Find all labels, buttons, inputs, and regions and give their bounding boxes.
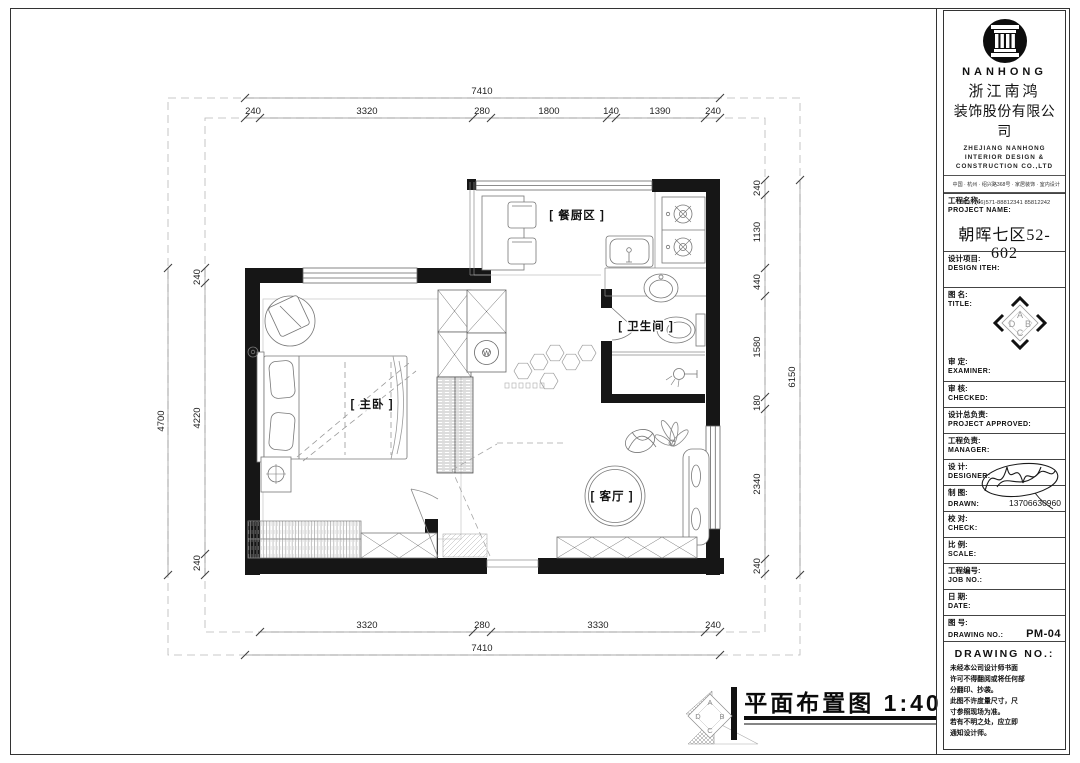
- design-item-section: 设计项目: DESIGN ITEH:: [944, 251, 1065, 287]
- notes-header: DRAWING NO.:: [950, 648, 1059, 660]
- note-line: 分翻印、抄袭。: [950, 686, 1059, 697]
- shower-glass: [612, 352, 705, 355]
- abcd-diamond-logo: A B C D: [993, 296, 1047, 350]
- kitchen-furniture: [482, 196, 705, 270]
- kitchen-sink: [606, 236, 653, 267]
- dim: 240: [705, 620, 721, 631]
- company-name-zh-1: 浙江南鸿: [948, 80, 1061, 101]
- row-drawing-no: 图 号: DRAWING NO.:PM-04: [944, 615, 1065, 641]
- row-designer: 设 计: DESIGNER:: [944, 459, 1065, 485]
- bedroom-window: [303, 268, 417, 283]
- dim: 280: [474, 106, 490, 117]
- label-master-bedroom: [ 主卧 ]: [350, 397, 393, 411]
- dim: 3330: [587, 620, 608, 631]
- row-en: DRAWING NO.:: [948, 631, 1003, 641]
- dim-right-overall: 6150: [787, 366, 798, 387]
- signoff-rows: 审 定: EXAMINER: 审 核: CHECKED: 设计总负责: PROJ…: [944, 355, 1065, 641]
- title-underline-thick: [744, 716, 936, 720]
- dim: 1800: [538, 106, 559, 117]
- dim: 140: [603, 106, 619, 117]
- entry-cabinets: [361, 533, 487, 558]
- dim: 440: [752, 274, 763, 290]
- entry-threshold: [487, 560, 538, 567]
- dim: 1580: [752, 336, 763, 357]
- dim-top-overall: 7410: [471, 86, 492, 97]
- title-block: NANHONG 浙江南鸿 装饰股份有限公司 ZHEJIANG NANHONG I…: [936, 8, 1068, 754]
- row-en: CHECKED:: [948, 394, 988, 404]
- wash-basin: [644, 274, 678, 302]
- figure-title-bar: A B C D 平面布置图 1:40: [686, 687, 940, 744]
- project-name-section: 工程名称: PROJECT NAME: 朝晖七区52-602: [944, 193, 1065, 251]
- row-date: 日 期: DATE:: [944, 589, 1065, 615]
- company-address: 中国 · 杭州 · 绍兴路368号 · 家居装饰 · 室内设计: [953, 181, 1057, 188]
- note-line: 未经本公司设计师书面: [950, 664, 1059, 675]
- row-en: EXAMINER:: [948, 367, 991, 377]
- drawn-phone-value: 13706630960: [1009, 498, 1061, 508]
- note-line: 寸参照现场为准。: [950, 708, 1059, 719]
- dim: 3320: [356, 106, 377, 117]
- row-checked: 审 核: CHECKED:: [944, 381, 1065, 407]
- row-zh: 图 号:: [948, 618, 1061, 628]
- company-name-en-1: ZHEJIANG NANHONG: [948, 144, 1061, 153]
- diamond-letter-b: B: [1025, 319, 1031, 329]
- gas-stove: [662, 197, 705, 263]
- diamond-letter-d: D: [1009, 319, 1016, 329]
- label-bathroom: [ 卫生间 ]: [618, 319, 674, 333]
- pillow: [268, 360, 295, 399]
- living-furniture: [557, 419, 709, 558]
- dim-bottom-overall: 7410: [471, 643, 492, 654]
- entry-mat: [443, 534, 487, 557]
- storage-column: W: [437, 290, 506, 473]
- dim: 240: [192, 555, 203, 571]
- washing-machine: W: [467, 333, 506, 372]
- row-project-approved: 设计总负责: PROJECT APPROVED:: [944, 407, 1065, 433]
- row-zh: 制 图:: [948, 488, 1061, 498]
- figure-title: 平面布置图 1:40: [744, 690, 940, 716]
- label-kitchen-dining: [ 餐厨区 ]: [549, 208, 605, 222]
- row-scale: 比 例: SCALE:: [944, 537, 1065, 563]
- row-en: DRAWN:: [948, 500, 979, 510]
- floor-plan-drawing: 7410 240 3320 280 1800 140 1390 240 3320…: [0, 0, 940, 763]
- low-cabinet-hatched: [248, 521, 361, 558]
- dim: 3320: [356, 620, 377, 631]
- bedroom-furniture: [248, 295, 407, 558]
- plant: [654, 419, 691, 448]
- dim-left-overall: 4700: [156, 410, 167, 431]
- dim: 240: [192, 269, 203, 285]
- kitchen-window: [476, 181, 652, 190]
- design-item-en: DESIGN ITEH:: [948, 264, 1061, 274]
- note-line: 若有不明之处，应立即: [950, 718, 1059, 729]
- project-label-zh: 工程名称:: [948, 196, 1061, 206]
- row-examiner: 审 定: EXAMINER:: [944, 355, 1065, 381]
- row-zh: 审 定:: [948, 357, 1061, 367]
- dim: 240: [752, 180, 763, 196]
- row-job-no: 工程编号: JOB NO.:: [944, 563, 1065, 589]
- company-name-en-3: CONSTRUCTION CO.,LTD: [948, 162, 1061, 171]
- dim: 2340: [752, 473, 763, 494]
- row-zh: 校 对:: [948, 514, 1061, 524]
- drawing-sheet: 7410 240 3320 280 1800 140 1390 240 3320…: [0, 0, 1080, 763]
- row-en: CHECK:: [948, 524, 978, 534]
- dim: 1130: [752, 222, 763, 242]
- note-line: 此图不许度量尺寸，尺: [950, 697, 1059, 708]
- notes-section: DRAWING NO.: 未经本公司设计师书面 许可不得翻阅或将任何部 分翻印、…: [944, 641, 1065, 749]
- logo-letter-c: C: [707, 726, 713, 735]
- pillow: [268, 412, 295, 451]
- company-logo-text: NANHONG: [948, 66, 1061, 78]
- washing-machine-label: W: [483, 351, 490, 358]
- armchair-sketch: [622, 426, 658, 457]
- kitchen-glass-partition: [470, 182, 474, 275]
- row-en: MANAGER:: [948, 446, 990, 456]
- project-label-en: PROJECT NAME:: [948, 206, 1061, 216]
- dim: 240: [245, 106, 261, 117]
- company-name-en-2: INTERIOR DESIGN &: [948, 153, 1061, 162]
- title-block-inner: NANHONG 浙江南鸿 装饰股份有限公司 ZHEJIANG NANHONG I…: [943, 10, 1066, 750]
- chaise-lounge: [683, 449, 709, 545]
- row-check: 校 对: CHECK:: [944, 511, 1065, 537]
- row-zh: 比 例:: [948, 540, 1061, 550]
- logo-letter-a: A: [707, 698, 712, 707]
- design-item-zh: 设计项目:: [948, 254, 1061, 264]
- note-line: 通知设计师。: [950, 729, 1059, 740]
- dim: 280: [474, 620, 490, 631]
- shower-head: [666, 369, 697, 388]
- row-en: DESIGNER:: [948, 472, 991, 482]
- floor-mosaic-dots: [505, 383, 544, 388]
- note-line: 许可不得翻阅或将任何部: [950, 675, 1059, 686]
- row-zh: 工程编号:: [948, 566, 1061, 576]
- dim: 240: [705, 106, 721, 117]
- tv-cabinet: [557, 537, 697, 558]
- nanhong-column-logo: [981, 17, 1029, 65]
- dim: 1390: [649, 106, 670, 117]
- row-manager: 工程负责: MANAGER:: [944, 433, 1065, 459]
- logo-letter-d: D: [695, 712, 701, 721]
- diamond-letter-a: A: [1017, 310, 1023, 320]
- drawing-number-value: PM-04: [1026, 628, 1061, 640]
- row-en: PROJECT APPROVED:: [948, 420, 1031, 430]
- row-en: DATE:: [948, 602, 971, 612]
- label-living-room: [ 客厅 ]: [590, 489, 633, 503]
- company-name-zh-2: 装饰股份有限公司: [948, 101, 1061, 141]
- row-drawn: 制 图: DRAWN:13706630960: [944, 485, 1065, 511]
- row-zh: 日 期:: [948, 592, 1061, 602]
- nightstand: [261, 457, 291, 492]
- dim: 240: [752, 558, 763, 574]
- row-zh: 设计总负责:: [948, 410, 1061, 420]
- row-zh: 工程负责:: [948, 436, 1061, 446]
- row-en: SCALE:: [948, 550, 976, 560]
- row-zh: 设 计:: [948, 462, 1061, 472]
- dim: 180: [752, 395, 763, 411]
- row-zh: 审 核:: [948, 384, 1061, 394]
- company-header: NANHONG 浙江南鸿 装饰股份有限公司 ZHEJIANG NANHONG I…: [944, 11, 1065, 193]
- title-section: 图 名: TITLE: A B C D: [944, 287, 1065, 355]
- divider: [944, 175, 1065, 176]
- dim: 4220: [192, 407, 203, 428]
- figure-logo-bar: [731, 687, 737, 740]
- row-en: JOB NO.:: [948, 576, 982, 586]
- hexagon-floor-tiles: [514, 345, 596, 389]
- diamond-letter-c: C: [1017, 328, 1024, 338]
- logo-letter-b: B: [719, 712, 724, 721]
